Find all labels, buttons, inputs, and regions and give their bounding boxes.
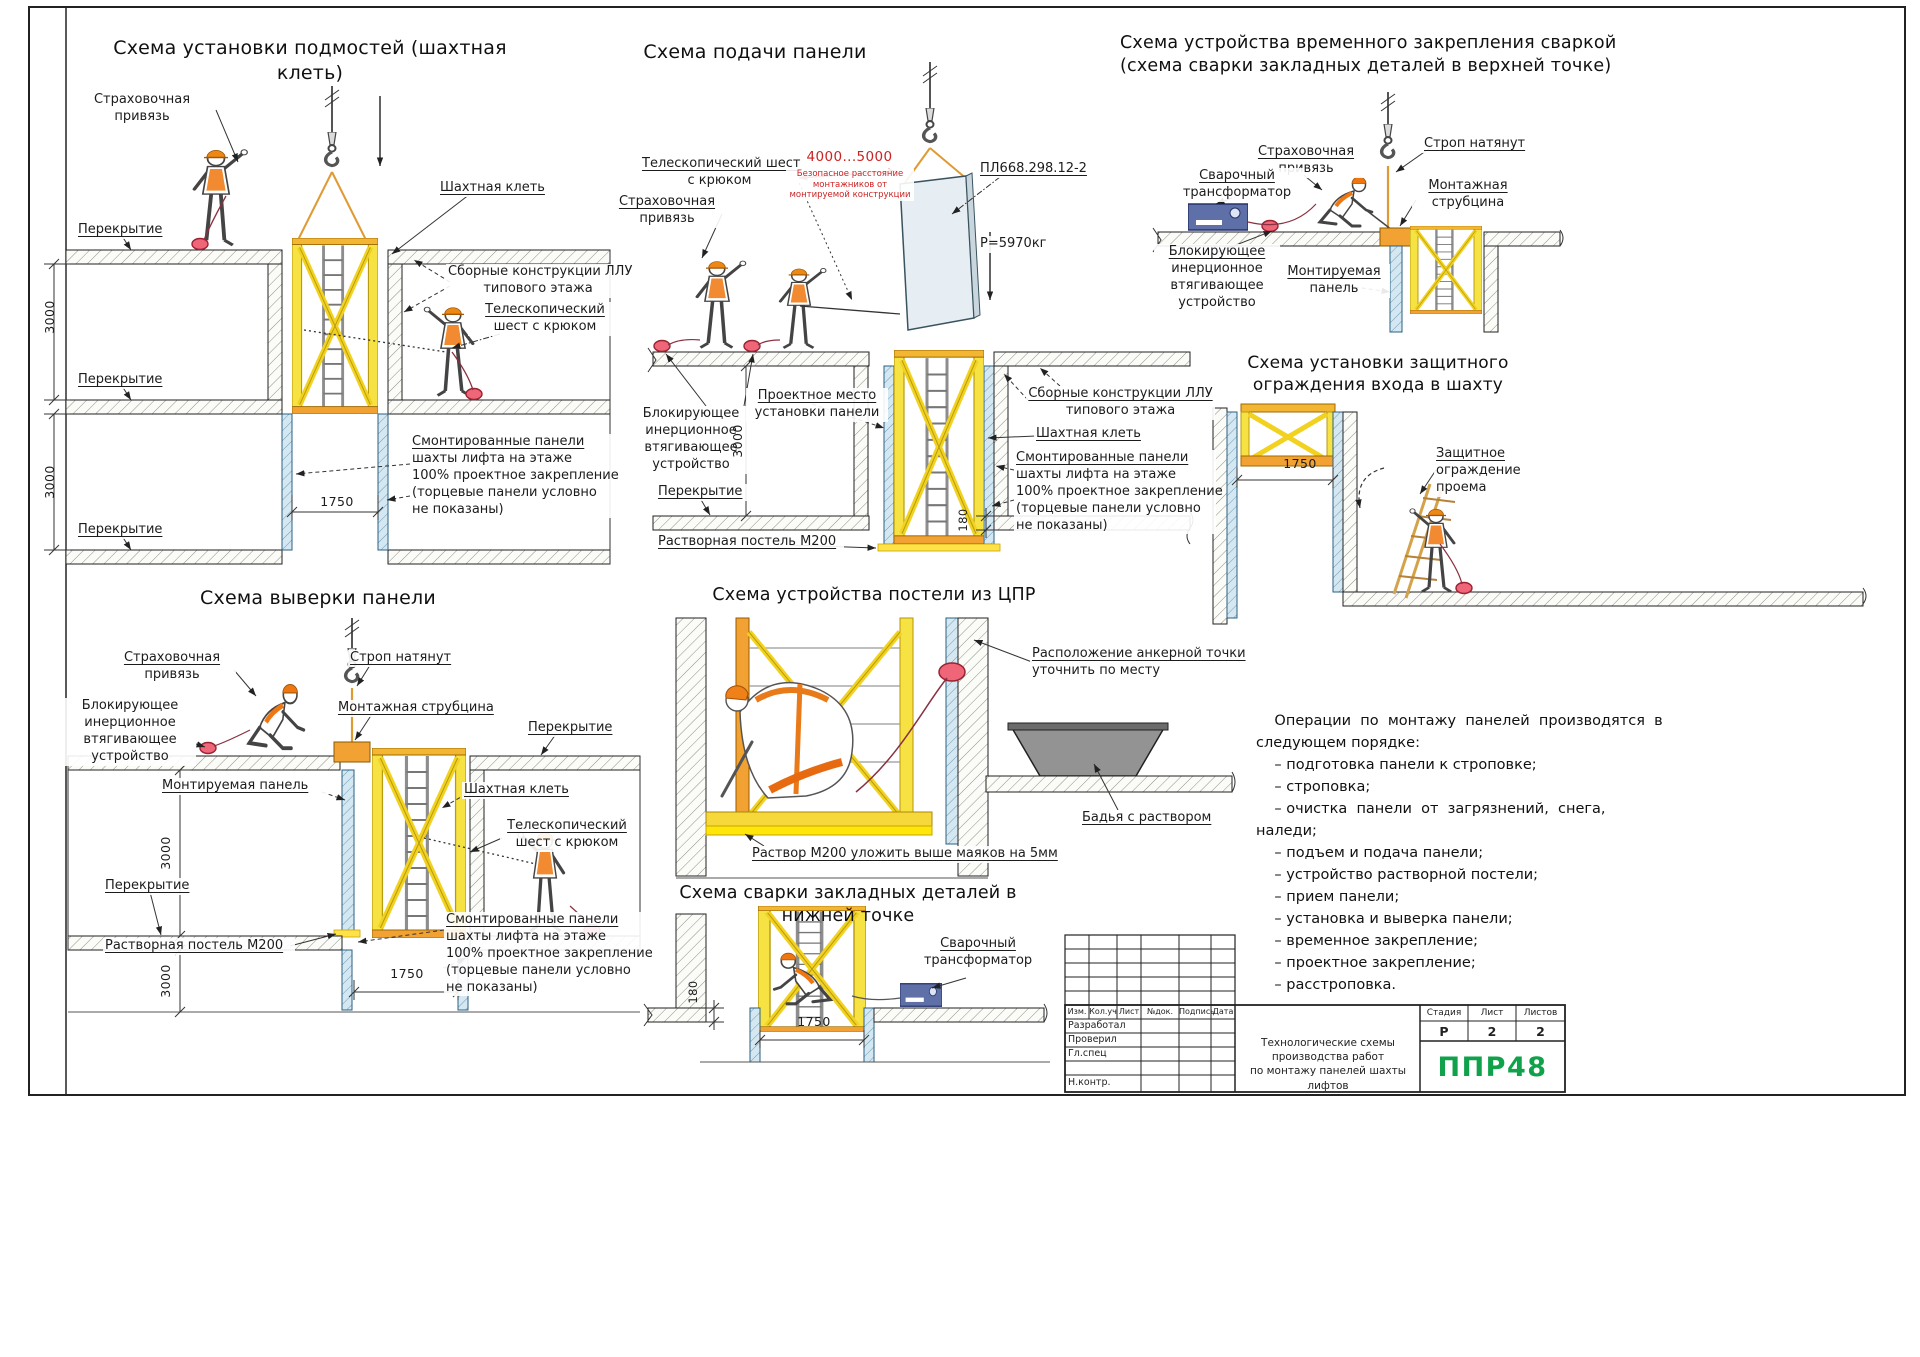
label-telescopic-pole: Телескопическийшест с крюком bbox=[500, 818, 634, 852]
mortar-bed bbox=[878, 544, 1000, 551]
dim-1750: 1750 bbox=[352, 966, 462, 982]
label-anchor-point: Расположение анкерной точкиуточнить по м… bbox=[1030, 646, 1244, 680]
dim-3000: 3000 bbox=[158, 946, 173, 1016]
retractable-device bbox=[192, 239, 208, 250]
scheme1-title: Схема установки подмостей (шахтная клеть… bbox=[85, 36, 535, 85]
worker-figure bbox=[697, 261, 746, 348]
dim-1750: 1750 bbox=[1250, 456, 1350, 472]
label-mortar-bed: Растворная постель М200 bbox=[656, 534, 844, 551]
label-welding-transformer: Сварочныйтрансформатор bbox=[1170, 168, 1304, 202]
label-taut-sling: Строп натянут bbox=[348, 650, 467, 667]
welding-transformer bbox=[1188, 204, 1248, 230]
stamp-col-koluch: Кол.уч bbox=[1089, 1007, 1117, 1016]
scheme7-title: Схема сварки закладных деталей в нижней … bbox=[643, 882, 1053, 928]
stamp-stage-label: Стадия bbox=[1420, 1008, 1468, 1018]
dim-3000: 3000 bbox=[42, 282, 57, 352]
worker-figure bbox=[249, 685, 304, 749]
label-design-position: Проектное местоустановки панели bbox=[746, 388, 888, 422]
telescopic-pole bbox=[800, 306, 900, 314]
label-mounting-clamp: Монтажнаяструбцина bbox=[1412, 178, 1524, 212]
stamp-sheets-value: 2 bbox=[1516, 1024, 1565, 1039]
retractable-device bbox=[1456, 583, 1472, 594]
mounted-panel bbox=[1390, 246, 1402, 332]
label-mounted-panels: Смонтированные панелишахты лифта на этаж… bbox=[444, 912, 646, 996]
worker-figure bbox=[424, 307, 473, 395]
label-mounted-panel: Монтируемаяпанель bbox=[1278, 264, 1390, 298]
stamp-row-chief: Гл.спец bbox=[1068, 1048, 1140, 1059]
dim-1750: 1750 bbox=[766, 1014, 862, 1030]
dim-180: 180 bbox=[956, 500, 970, 540]
stamp-doc-title: Технологические схемы производства работ… bbox=[1238, 1036, 1418, 1093]
label-protective-guard: Защитноеограждениепроема bbox=[1434, 446, 1560, 497]
scheme5-title: Схема выверки панели bbox=[168, 586, 468, 611]
label-shaft-cage: Шахтная клеть bbox=[462, 782, 576, 799]
mounted-panel bbox=[1227, 412, 1237, 618]
scheme4-drawing bbox=[1213, 404, 1866, 624]
label-panel-weight: Р=5970кг bbox=[978, 236, 1082, 253]
label-panel-mark: ПЛ668.298.12-2 bbox=[978, 161, 1112, 178]
label-telescopic-pole: Телескопическийшест с крюком bbox=[468, 302, 622, 336]
scheme3-title: Схема устройства временного закрепления … bbox=[1120, 32, 1550, 78]
label-mounted-panels: Смонтированные панелишахты лифта на этаж… bbox=[410, 434, 612, 518]
label-precast-structures: Сборные конструкции ЛЛУтипового этажа bbox=[1026, 386, 1215, 420]
stamp-sheets-label: Листов bbox=[1516, 1008, 1565, 1018]
anchor-point-device bbox=[939, 663, 965, 681]
dim-180: 180 bbox=[686, 972, 700, 1012]
label-taut-sling: Строп натянут bbox=[1422, 136, 1541, 153]
dim-3000: 3000 bbox=[730, 406, 745, 476]
stamp-col-izm: Изм. bbox=[1065, 1007, 1089, 1016]
shaft-cage bbox=[372, 744, 466, 938]
label-floor-slab: Перекрытие bbox=[76, 222, 168, 239]
worker-figure bbox=[780, 268, 826, 347]
label-floor-slab: Перекрытие bbox=[656, 484, 750, 501]
retractable-device bbox=[200, 743, 216, 754]
label-welding-transformer: Сварочныйтрансформатор bbox=[906, 936, 1050, 970]
scheme2-title: Схема подачи панели bbox=[565, 40, 945, 65]
mounted-panel bbox=[750, 1008, 760, 1062]
placement-arrow bbox=[1359, 468, 1384, 508]
stamp-row-ncontrol: Н.контр. bbox=[1068, 1077, 1140, 1088]
drawing-canvas bbox=[0, 0, 1920, 1357]
dim-1750: 1750 bbox=[295, 494, 379, 510]
scheme4-title: Схема установки защитногоограждения вход… bbox=[1213, 352, 1543, 396]
label-mortar-bed: Растворная постель М200 bbox=[103, 938, 295, 955]
shaft-cage bbox=[894, 346, 984, 544]
mounted-panel bbox=[282, 414, 292, 550]
dim-3000: 3000 bbox=[42, 447, 57, 517]
retractable-device bbox=[744, 341, 760, 352]
scheme6-title: Схема устройства постели из ЦПР bbox=[694, 584, 1054, 607]
mounted-panel bbox=[1333, 412, 1343, 592]
stamp-row-developed: Разработал bbox=[1068, 1020, 1140, 1031]
label-safe-distance-note: Безопасное расстояниемонтажников отмонти… bbox=[786, 169, 914, 201]
label-floor-slab: Перекрытие bbox=[76, 372, 168, 389]
mortar-bed bbox=[706, 826, 932, 835]
company-logo: ППР48 bbox=[1420, 1046, 1565, 1090]
worker-figure bbox=[1320, 177, 1372, 226]
label-floor-slab: Перекрытие bbox=[526, 720, 620, 737]
stamp-sheet-value: 2 bbox=[1468, 1024, 1516, 1039]
stamp-col-dok: №док. bbox=[1141, 1007, 1179, 1016]
dim-safe-distance: 4000...5000 bbox=[790, 149, 909, 167]
mounted-panel bbox=[946, 618, 958, 844]
label-shaft-cage: Шахтная клеть bbox=[1034, 426, 1153, 443]
shaft-cage bbox=[1410, 224, 1482, 314]
label-floor-slab: Перекрытие bbox=[103, 878, 197, 895]
dim-3000: 3000 bbox=[158, 818, 173, 888]
label-mortar-instruction: Раствор М200 уложить выше маяков на 5мм bbox=[750, 846, 1069, 863]
label-mounted-panels: Смонтированные панелишахты лифта на этаж… bbox=[1014, 450, 1216, 534]
label-mounting-clamp: Монтажная струбцина bbox=[336, 700, 502, 717]
stamp-row-checked: Проверил bbox=[1068, 1034, 1140, 1045]
worker-figure bbox=[194, 150, 247, 245]
label-safety-harness: Страховочнаяпривязь bbox=[108, 650, 236, 684]
stamp-col-podpis: Подпись bbox=[1179, 1007, 1211, 1016]
retractable-device bbox=[466, 389, 482, 400]
label-mortar-tub: Бадья с раствором bbox=[1080, 810, 1229, 827]
label-mounted-panel: Монтируемая панель bbox=[160, 778, 326, 795]
label-precast-structures: Сборные конструкции ЛЛУтипового этажа bbox=[446, 264, 630, 298]
shaft-cage bbox=[292, 234, 378, 414]
label-blocking-device: Блокирующееинерционноевтягивающееустройс… bbox=[1154, 244, 1280, 312]
label-safety-harness: Страховочнаяпривязь bbox=[606, 194, 728, 228]
mounting-operations-notes: Операции по монтажу панелей производятся… bbox=[1256, 710, 1896, 996]
stamp-col-data: Дата bbox=[1211, 1007, 1235, 1016]
drawing-sheet: Схема установки подмостей (шахтная клеть… bbox=[0, 0, 1920, 1357]
label-shaft-cage: Шахтная клеть bbox=[438, 180, 554, 197]
label-telescopic-pole: Телескопический шестс крюком bbox=[640, 156, 799, 190]
mounting-clamp bbox=[1380, 228, 1414, 246]
retractable-device bbox=[1262, 221, 1278, 232]
mounted-panel bbox=[342, 770, 354, 936]
cage-platform bbox=[706, 812, 932, 826]
label-blocking-device: Блокирующееинерционноевтягивающееустройс… bbox=[64, 698, 196, 766]
label-floor-slab: Перекрытие bbox=[76, 522, 168, 539]
mounted-panel bbox=[378, 414, 388, 550]
stamp-col-list: Лист bbox=[1117, 1007, 1141, 1016]
stamp-sheet-label: Лист bbox=[1468, 1008, 1516, 1018]
label-safety-harness: Страховочнаяпривязь bbox=[70, 92, 214, 126]
stamp-stage-value: Р bbox=[1420, 1024, 1468, 1039]
retractable-device bbox=[654, 341, 670, 352]
mounting-clamp bbox=[334, 742, 370, 762]
mortar-tub bbox=[1012, 728, 1164, 776]
